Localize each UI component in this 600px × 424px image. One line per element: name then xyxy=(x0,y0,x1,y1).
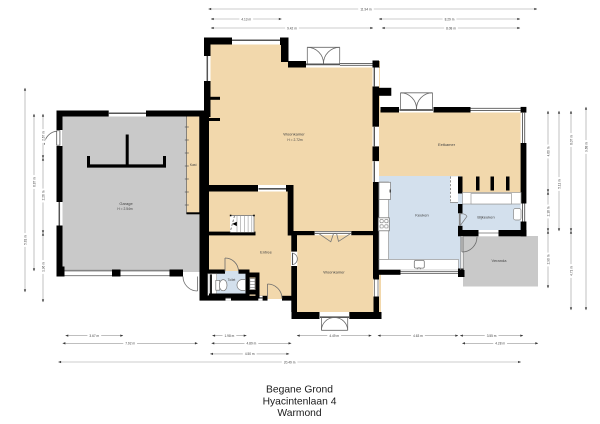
svg-text:H = 2.72m: H = 2.72m xyxy=(287,138,303,142)
svg-text:4.60 m: 4.60 m xyxy=(546,146,550,156)
svg-text:4.63 m: 4.63 m xyxy=(413,334,423,338)
svg-text:Warmond: Warmond xyxy=(277,408,322,419)
svg-text:11.94 m: 11.94 m xyxy=(360,7,372,11)
svg-text:8.08 m: 8.08 m xyxy=(446,26,456,30)
svg-text:3.67 m: 3.67 m xyxy=(89,334,99,338)
svg-text:Woonkamer: Woonkamer xyxy=(283,131,305,136)
svg-text:Garage: Garage xyxy=(119,201,133,206)
svg-text:2.90 m: 2.90 m xyxy=(546,254,550,264)
svg-text:H = 2.54m: H = 2.54m xyxy=(117,207,133,211)
svg-text:2.18 m: 2.18 m xyxy=(546,206,550,216)
svg-text:Veranda: Veranda xyxy=(492,258,508,263)
svg-text:1.96 m: 1.96 m xyxy=(41,262,45,272)
svg-text:9.68 m: 9.68 m xyxy=(584,142,588,152)
svg-text:2.26 m: 2.26 m xyxy=(41,190,45,200)
svg-text:5.11 m: 5.11 m xyxy=(557,179,561,189)
svg-text:1.98 m: 1.98 m xyxy=(225,334,235,338)
svg-text:Toilet: Toilet xyxy=(228,278,236,282)
svg-text:5.81 m: 5.81 m xyxy=(23,235,27,245)
svg-text:Bijkeuken: Bijkeuken xyxy=(477,214,494,219)
svg-text:4.28 m: 4.28 m xyxy=(495,342,505,346)
svg-text:4.71 m: 4.71 m xyxy=(569,266,573,276)
svg-text:Woonkamer: Woonkamer xyxy=(323,270,345,275)
svg-text:8.29 m: 8.29 m xyxy=(445,17,455,21)
svg-text:Hyacintenlaan 4: Hyacintenlaan 4 xyxy=(263,396,337,407)
svg-text:Eetkamer: Eetkamer xyxy=(438,142,456,147)
svg-text:Begane Grond: Begane Grond xyxy=(266,385,333,396)
svg-text:4.13 m: 4.13 m xyxy=(241,17,251,21)
svg-text:Kast: Kast xyxy=(190,163,197,167)
svg-text:20.49 m: 20.49 m xyxy=(284,360,296,364)
svg-text:7.92 m: 7.92 m xyxy=(125,342,135,346)
svg-text:8.07 m: 8.07 m xyxy=(569,135,573,145)
svg-text:2.67 m: 2.67 m xyxy=(41,131,45,141)
svg-text:Entree: Entree xyxy=(260,250,273,255)
svg-text:3.55 m: 3.55 m xyxy=(487,334,497,338)
svg-text:4.49 m: 4.49 m xyxy=(329,334,339,338)
svg-text:Keuken: Keuken xyxy=(415,212,429,217)
svg-text:9.42 m: 9.42 m xyxy=(287,26,297,30)
svg-text:6.87 m: 6.87 m xyxy=(32,177,36,187)
svg-text:4.89 m: 4.89 m xyxy=(247,342,257,346)
svg-text:4.50 m: 4.50 m xyxy=(245,352,255,356)
